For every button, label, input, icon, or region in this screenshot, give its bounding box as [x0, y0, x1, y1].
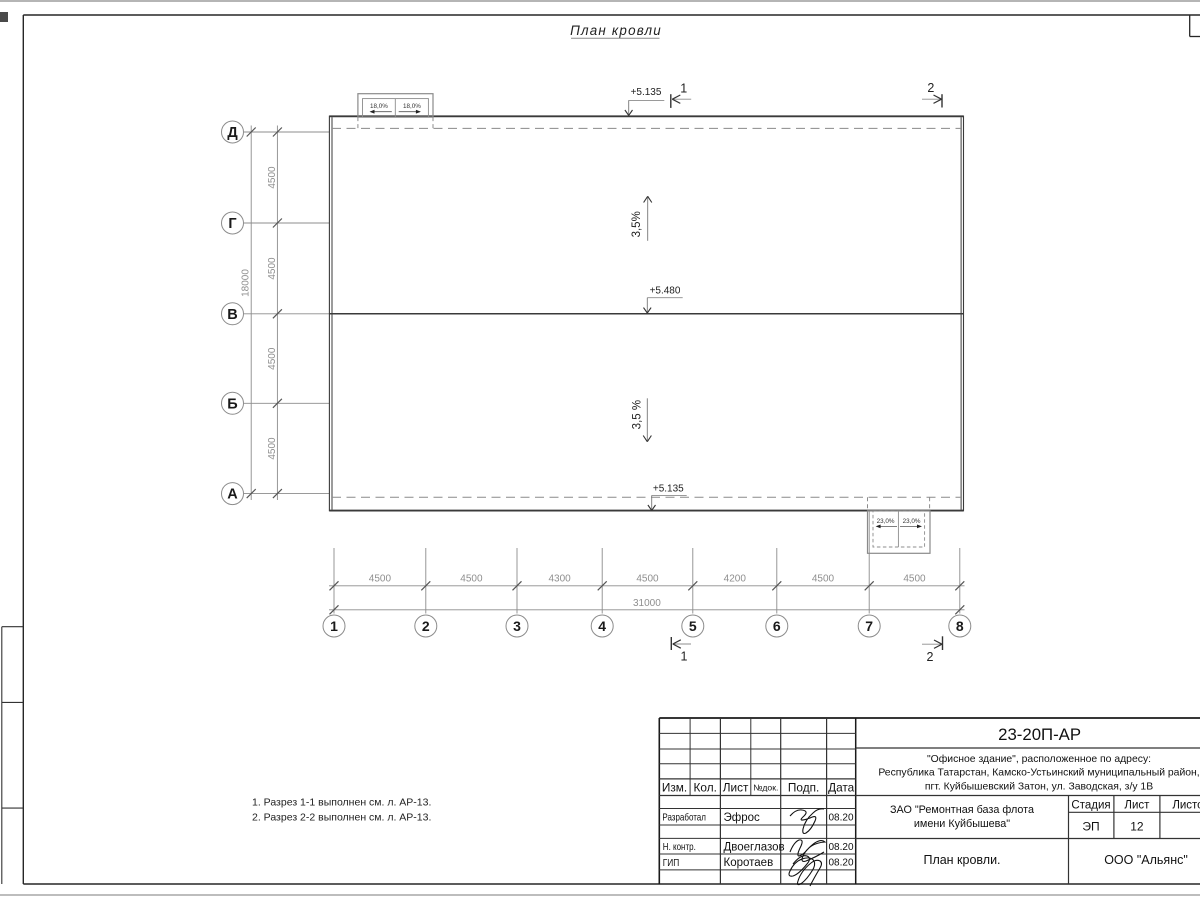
svg-text:ЗАО "Ремонтная база флота: ЗАО "Ремонтная база флота — [890, 804, 1034, 816]
svg-text:Подп.: Подп. — [788, 780, 819, 794]
svg-text:"Офисное здание", расположенно: "Офисное здание", расположенное по адрес… — [927, 753, 1151, 765]
svg-text:7: 7 — [865, 618, 873, 634]
svg-text:4500: 4500 — [369, 574, 392, 585]
svg-text:18000: 18000 — [241, 269, 252, 297]
svg-text:5: 5 — [689, 618, 697, 634]
svg-text:4300: 4300 — [548, 574, 571, 585]
svg-text:2: 2 — [927, 650, 934, 664]
svg-text:3,5%: 3,5% — [631, 211, 643, 237]
svg-text:8: 8 — [956, 618, 964, 634]
svg-text:4500: 4500 — [267, 257, 278, 280]
svg-text:Дата: Дата — [828, 780, 855, 794]
svg-text:Разработал: Разработал — [662, 812, 706, 824]
svg-text:Изм.: Изм. — [662, 780, 687, 794]
svg-text:1: 1 — [681, 649, 688, 663]
svg-text:2: 2 — [422, 618, 430, 634]
svg-text:2: 2 — [927, 81, 934, 95]
svg-text:08.20: 08.20 — [828, 813, 853, 824]
svg-text:В: В — [227, 307, 237, 323]
svg-text:Г: Г — [228, 216, 236, 232]
svg-text:+5.135: +5.135 — [631, 87, 662, 98]
svg-text:23,0%: 23,0% — [877, 518, 895, 525]
svg-text:1: 1 — [680, 82, 687, 96]
svg-text:Б: Б — [227, 396, 237, 412]
svg-text:Республика Татарстан, Камско-У: Республика Татарстан, Камско-Устьинский … — [878, 767, 1199, 779]
svg-text:18,0%: 18,0% — [370, 103, 388, 110]
svg-text:ГИП: ГИП — [663, 858, 680, 869]
svg-text:3: 3 — [513, 618, 521, 634]
svg-text:12: 12 — [1130, 819, 1144, 833]
svg-text:08.20: 08.20 — [828, 842, 853, 853]
svg-text:имени Куйбышева": имени Куйбышева" — [914, 818, 1010, 830]
svg-text:1: 1 — [330, 618, 338, 634]
svg-text:4: 4 — [598, 618, 606, 634]
svg-text:31000: 31000 — [633, 598, 661, 609]
svg-text:+5.480: +5.480 — [650, 286, 681, 297]
svg-text:08.20: 08.20 — [828, 858, 853, 869]
svg-text:Стадия: Стадия — [1071, 800, 1110, 812]
svg-text:Кол.: Кол. — [694, 780, 717, 794]
svg-text:План кровли: План кровли — [570, 23, 662, 38]
svg-text:+5.135: +5.135 — [653, 483, 684, 494]
svg-text:№док.: №док. — [753, 783, 778, 793]
svg-text:4500: 4500 — [636, 574, 659, 585]
svg-text:пгт. Куйбышевский Затон, ул. З: пгт. Куйбышевский Затон, ул. Заводская, … — [925, 780, 1153, 792]
svg-text:4500: 4500 — [460, 574, 483, 585]
svg-text:4500: 4500 — [267, 347, 278, 370]
svg-text:6: 6 — [773, 618, 781, 634]
svg-text:План кровли.: План кровли. — [923, 853, 1000, 867]
svg-text:Н. контр.: Н. контр. — [663, 842, 696, 853]
svg-text:18,0%: 18,0% — [403, 103, 421, 110]
svg-text:1. Разрез 1-1 выполнен см. л.: 1. Разрез 1-1 выполнен см. л. АР-13. — [252, 796, 431, 808]
svg-text:Двоеглазов: Двоеглазов — [724, 842, 785, 854]
svg-text:23-20П-АР: 23-20П-АР — [998, 725, 1081, 744]
svg-text:2. Разрез 2-2 выполнен см. л.: 2. Разрез 2-2 выполнен см. л. АР-13. — [252, 812, 431, 824]
svg-text:Эфрос: Эфрос — [724, 812, 761, 824]
svg-text:4500: 4500 — [903, 574, 926, 585]
svg-text:Лист: Лист — [1124, 800, 1150, 812]
svg-text:Коротаев: Коротаев — [724, 857, 774, 869]
svg-text:А: А — [227, 487, 238, 503]
svg-text:ЭП: ЭП — [1082, 819, 1099, 833]
svg-text:ООО "Альянс": ООО "Альянс" — [1104, 853, 1188, 867]
svg-text:4500: 4500 — [812, 574, 835, 585]
svg-text:Д: Д — [227, 125, 238, 141]
svg-text:4500: 4500 — [267, 166, 278, 189]
svg-text:3,5 %: 3,5 % — [632, 400, 644, 429]
svg-text:23,0%: 23,0% — [903, 518, 921, 525]
svg-text:Лист: Лист — [723, 780, 749, 794]
svg-text:4200: 4200 — [724, 574, 747, 585]
svg-text:Листов: Листов — [1172, 800, 1200, 812]
svg-text:4500: 4500 — [267, 437, 278, 460]
